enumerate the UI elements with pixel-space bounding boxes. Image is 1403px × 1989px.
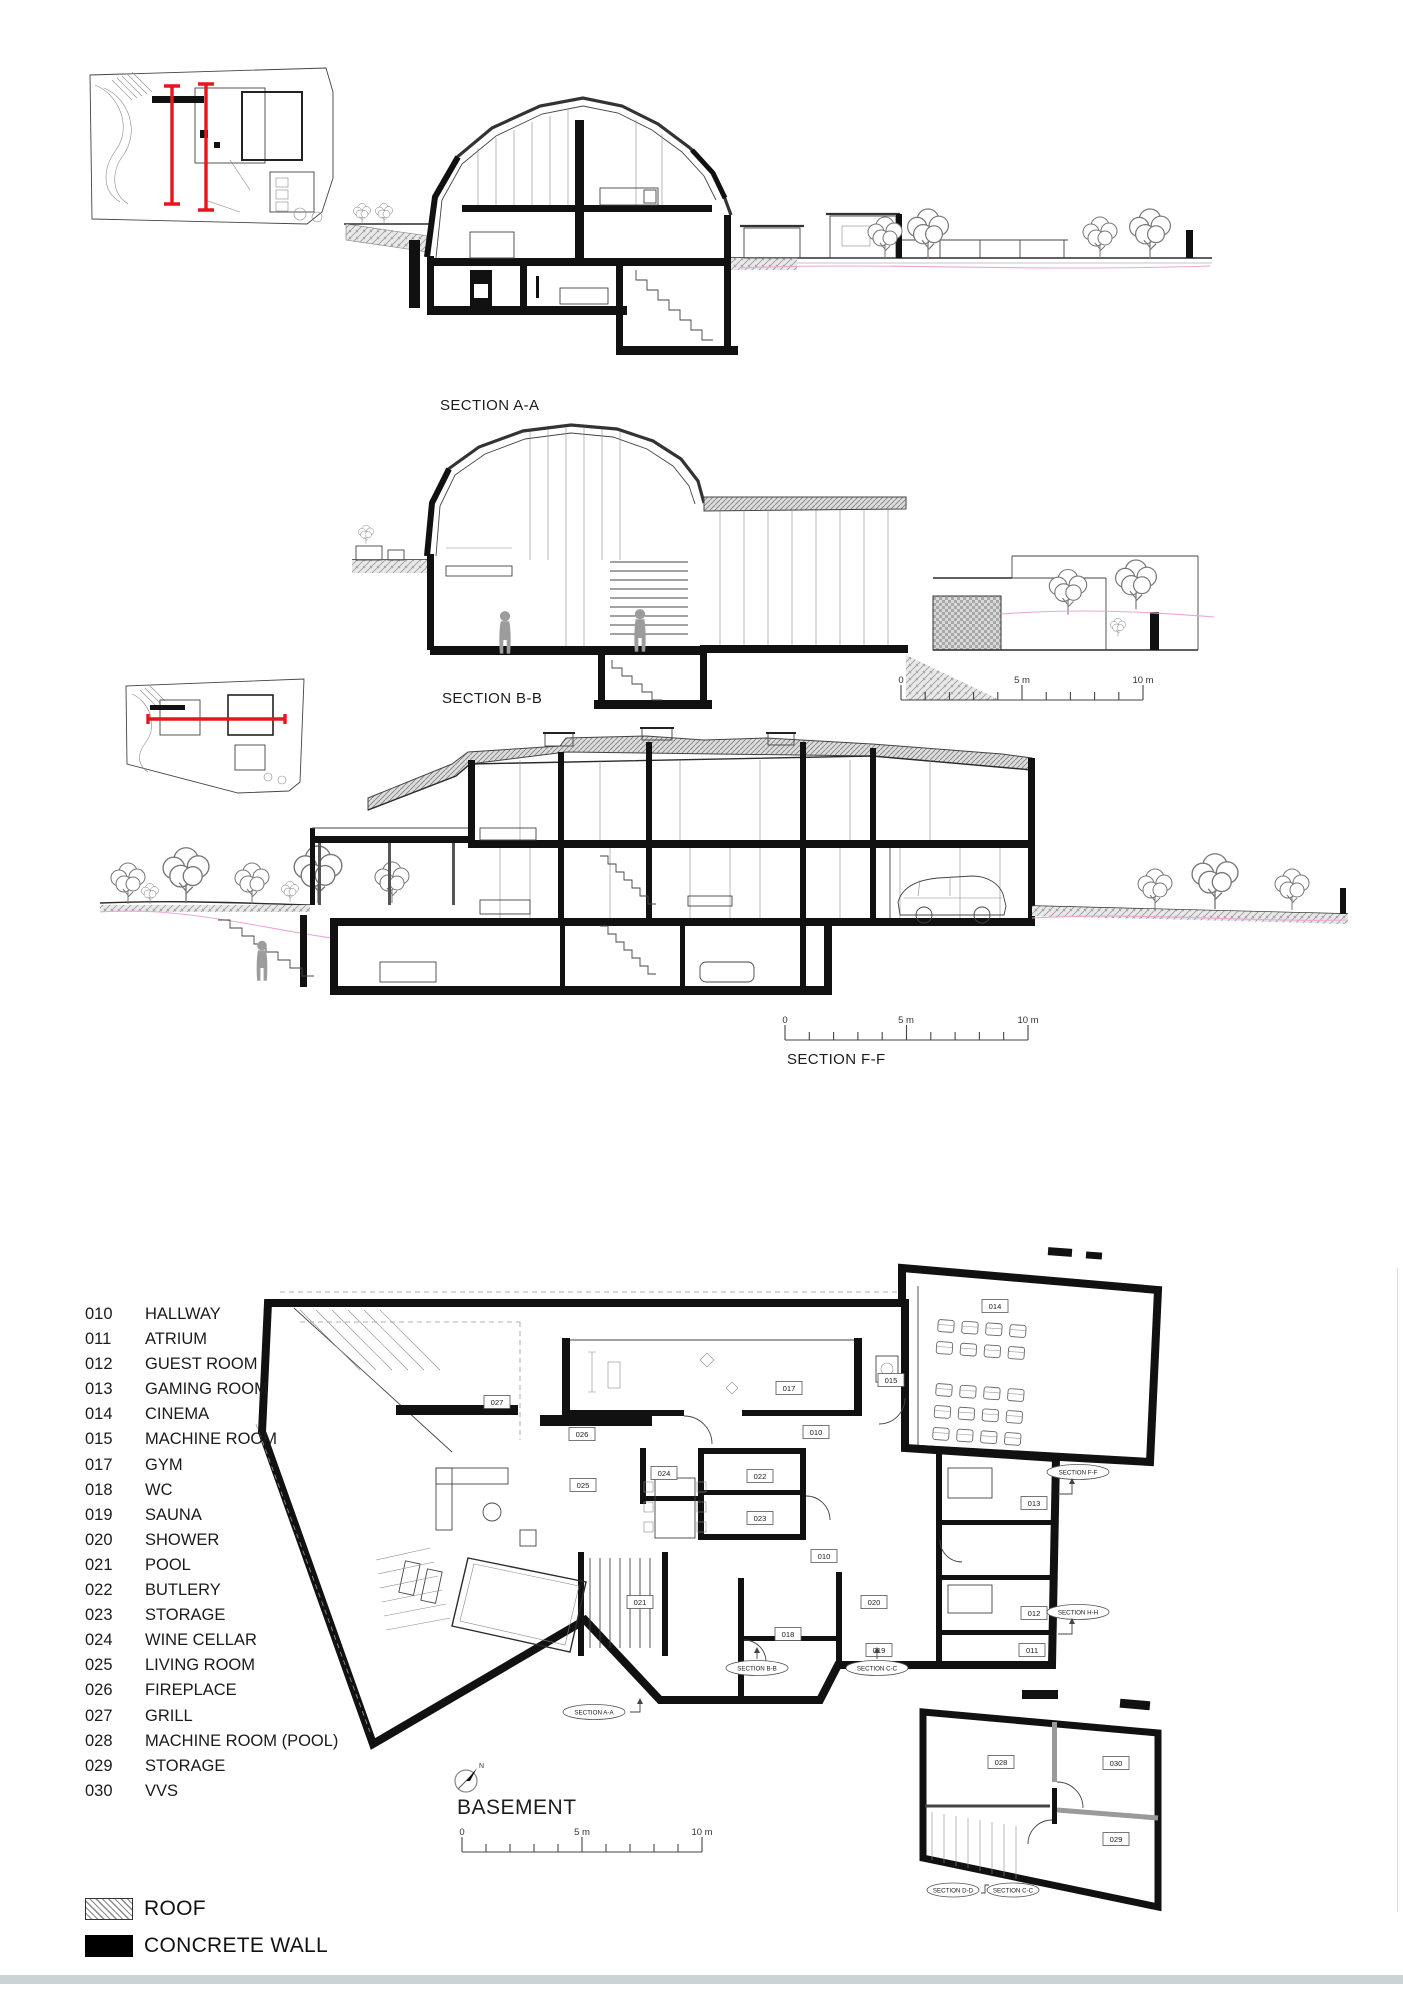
room-name: BUTLERY	[145, 1581, 221, 1599]
cinema-wing	[902, 1268, 1158, 1462]
room-tag-010b: 010	[811, 1550, 837, 1563]
marker-section-dd: SECTION D-D	[927, 1883, 979, 1897]
room-name: WC	[145, 1481, 173, 1499]
svg-text:025: 025	[577, 1481, 590, 1490]
svg-text:012: 012	[1028, 1609, 1041, 1618]
legend-row: 012GUEST ROOM	[85, 1352, 338, 1377]
section-aa-label: SECTION A-A	[440, 397, 539, 414]
drawing-sheet-page: { "sections": { "aa": {"label": "SECTION…	[0, 0, 1403, 1984]
legend-row: 026FIREPLACE	[85, 1678, 338, 1703]
pool-machine-plan-drawing: 028 030 029 SECTION D-D SECTION C-C	[923, 1690, 1158, 1907]
sheet-footer-strip	[0, 1975, 1403, 1984]
room-tag-021: 021	[627, 1596, 653, 1609]
room-tag-025: 025	[570, 1479, 596, 1492]
room-tag-014: 014	[982, 1300, 1008, 1313]
room-tag-023: 023	[747, 1512, 773, 1525]
concrete-wall-label: CONCRETE WALL	[144, 1934, 328, 1958]
roof-hatch-swatch	[85, 1898, 133, 1920]
svg-text:022: 022	[754, 1472, 767, 1481]
svg-text:SECTION A-A: SECTION A-A	[574, 1709, 614, 1716]
room-code: 020	[85, 1528, 145, 1553]
room-code: 023	[85, 1603, 145, 1628]
car-in-garage	[898, 876, 1006, 923]
svg-text:030: 030	[1110, 1759, 1123, 1768]
legend-row: 029STORAGE	[85, 1754, 338, 1779]
legend-row: 018WC	[85, 1478, 338, 1503]
svg-text:SECTION F-F: SECTION F-F	[1059, 1469, 1098, 1476]
svg-text:0: 0	[898, 675, 903, 686]
svg-text:029: 029	[1110, 1835, 1123, 1844]
legend-row: 014CINEMA	[85, 1402, 338, 1427]
legend-row: 028MACHINE ROOM (POOL)	[85, 1729, 338, 1754]
room-code: 030	[85, 1779, 145, 1804]
room-tag-011: 011	[1019, 1644, 1045, 1657]
room-tag-028: 028	[988, 1756, 1014, 1769]
section-bb-drawing: SECTION B-B 0 5 m 10 m	[352, 425, 1214, 709]
roof-label: ROOF	[144, 1897, 206, 1921]
basement-title: BASEMENT	[457, 1796, 577, 1819]
legend-row: 013GAMING ROOM	[85, 1377, 338, 1402]
legend-row: 019SAUNA	[85, 1503, 338, 1528]
svg-text:10 m: 10 m	[691, 1827, 712, 1838]
room-code: 010	[85, 1302, 145, 1327]
section-ff-label: SECTION F-F	[787, 1051, 886, 1068]
room-code: 013	[85, 1377, 145, 1402]
legend-row: 011ATRIUM	[85, 1327, 338, 1352]
svg-text:019: 019	[873, 1646, 886, 1655]
legend-row: 015MACHINE ROOM	[85, 1427, 338, 1452]
room-name: SAUNA	[145, 1506, 202, 1524]
room-code: 019	[85, 1503, 145, 1528]
svg-text:023: 023	[754, 1514, 767, 1523]
legend-row: 023STORAGE	[85, 1603, 338, 1628]
svg-text:015: 015	[885, 1376, 898, 1385]
room-code: 011	[85, 1327, 145, 1352]
svg-text:5 m: 5 m	[1014, 675, 1030, 686]
room-code: 021	[85, 1553, 145, 1578]
svg-text:SECTION D-D: SECTION D-D	[933, 1887, 974, 1894]
room-code: 022	[85, 1578, 145, 1603]
svg-text:N: N	[479, 1763, 484, 1770]
section-cut-line-ff	[148, 714, 285, 724]
room-code: 026	[85, 1678, 145, 1703]
legend-row: 022BUTLERY	[85, 1578, 338, 1603]
materials-legend: ROOF CONCRETE WALL	[85, 1897, 328, 1971]
room-tag-020: 020	[861, 1596, 887, 1609]
svg-text:SECTION H-H: SECTION H-H	[1058, 1609, 1098, 1616]
room-name: ATRIUM	[145, 1330, 207, 1348]
room-code: 025	[85, 1653, 145, 1678]
materials-row-concrete: CONCRETE WALL	[85, 1934, 328, 1958]
svg-text:5 m: 5 m	[898, 1015, 914, 1026]
scale-bar-section-ff: 0 5 m 10 m	[782, 1015, 1038, 1040]
room-tag-029: 029	[1103, 1833, 1129, 1846]
svg-text:020: 020	[868, 1598, 881, 1607]
legend-row: 030VVS	[85, 1779, 338, 1804]
room-name: HALLWAY	[145, 1305, 221, 1323]
room-code: 017	[85, 1453, 145, 1478]
room-code: 014	[85, 1402, 145, 1427]
svg-text:018: 018	[782, 1630, 795, 1639]
room-name: STORAGE	[145, 1757, 225, 1775]
section-aa-drawing: SECTION A-A	[344, 98, 1212, 414]
room-name: MACHINE ROOM (POOL)	[145, 1732, 338, 1750]
legend-row: 025LIVING ROOM	[85, 1653, 338, 1678]
legend-row: 027GRILL	[85, 1704, 338, 1729]
room-tag-012: 012	[1021, 1607, 1047, 1620]
svg-text:011: 011	[1026, 1646, 1038, 1655]
legend-row: 010HALLWAY	[85, 1302, 338, 1327]
room-name: POOL	[145, 1556, 191, 1574]
svg-text:0: 0	[782, 1015, 787, 1026]
room-name: LIVING ROOM	[145, 1656, 255, 1674]
svg-text:013: 013	[1028, 1499, 1041, 1508]
north-arrow: N	[455, 1763, 484, 1792]
svg-text:SECTION C-C: SECTION C-C	[857, 1665, 898, 1672]
svg-text:5 m: 5 m	[574, 1827, 590, 1838]
svg-text:027: 027	[491, 1398, 504, 1407]
room-code: 028	[85, 1729, 145, 1754]
svg-text:021: 021	[634, 1598, 647, 1607]
room-name: GAMING ROOM	[145, 1380, 268, 1398]
section-bb-label: SECTION B-B	[442, 690, 542, 707]
svg-text:10 m: 10 m	[1017, 1015, 1038, 1026]
room-legend-list: 010HALLWAY 011ATRIUM 012GUEST ROOM 013GA…	[85, 1302, 338, 1804]
room-tag-026: 026	[569, 1428, 595, 1441]
marker-section-cc2: SECTION C-C	[987, 1883, 1039, 1897]
room-name: GUEST ROOM	[145, 1355, 257, 1373]
marker-section-aa: SECTION A-A	[563, 1698, 643, 1720]
svg-text:014: 014	[989, 1302, 1002, 1311]
room-tag-030: 030	[1103, 1757, 1129, 1770]
room-code: 024	[85, 1628, 145, 1653]
room-name: WINE CELLAR	[145, 1631, 257, 1649]
legend-row: 017GYM	[85, 1453, 338, 1478]
scale-bar-basement: 0 5 m 10 m	[459, 1827, 712, 1852]
concrete-wall-swatch	[85, 1935, 133, 1957]
room-tag-019: 019	[866, 1644, 892, 1657]
room-tag-022: 022	[747, 1470, 773, 1483]
svg-text:017: 017	[783, 1384, 796, 1393]
room-code: 027	[85, 1704, 145, 1729]
room-code: 012	[85, 1352, 145, 1377]
room-tag-017: 017	[776, 1382, 802, 1395]
svg-text:010: 010	[818, 1552, 831, 1561]
room-tag-015: 015	[878, 1374, 904, 1387]
room-name: SHOWER	[145, 1531, 219, 1549]
svg-text:SECTION C-C: SECTION C-C	[993, 1887, 1034, 1894]
key-plan-section-f	[126, 679, 304, 793]
key-plan-sections-ab	[90, 68, 333, 224]
room-tag-013: 013	[1021, 1497, 1047, 1510]
room-name: GYM	[145, 1456, 183, 1474]
room-name: MACHINE ROOM	[145, 1430, 277, 1448]
room-name: CINEMA	[145, 1405, 209, 1423]
room-tag-027: 027	[484, 1396, 510, 1409]
room-name: GRILL	[145, 1707, 193, 1725]
svg-text:SECTION B-B: SECTION B-B	[737, 1665, 777, 1672]
svg-text:026: 026	[576, 1430, 589, 1439]
svg-text:028: 028	[995, 1758, 1008, 1767]
legend-row: 020SHOWER	[85, 1528, 338, 1553]
svg-text:010: 010	[810, 1428, 823, 1437]
room-code: 029	[85, 1754, 145, 1779]
section-cut-line-aa	[164, 86, 180, 204]
legend-row: 021POOL	[85, 1553, 338, 1578]
room-code: 015	[85, 1427, 145, 1452]
section-ff-drawing: SECTION F-F 0 5 m 10 m	[100, 728, 1348, 1068]
svg-text:10 m: 10 m	[1132, 675, 1153, 686]
room-tag-018: 018	[775, 1628, 801, 1641]
svg-text:024: 024	[658, 1469, 671, 1478]
room-name: VVS	[145, 1782, 178, 1800]
room-name: STORAGE	[145, 1606, 225, 1624]
room-name: FIREPLACE	[145, 1681, 237, 1699]
materials-row-roof: ROOF	[85, 1897, 328, 1921]
legend-row: 024WINE CELLAR	[85, 1628, 338, 1653]
room-code: 018	[85, 1478, 145, 1503]
room-tag-010a: 010	[803, 1426, 829, 1439]
room-tag-024: 024	[651, 1467, 677, 1480]
svg-text:0: 0	[459, 1827, 464, 1838]
